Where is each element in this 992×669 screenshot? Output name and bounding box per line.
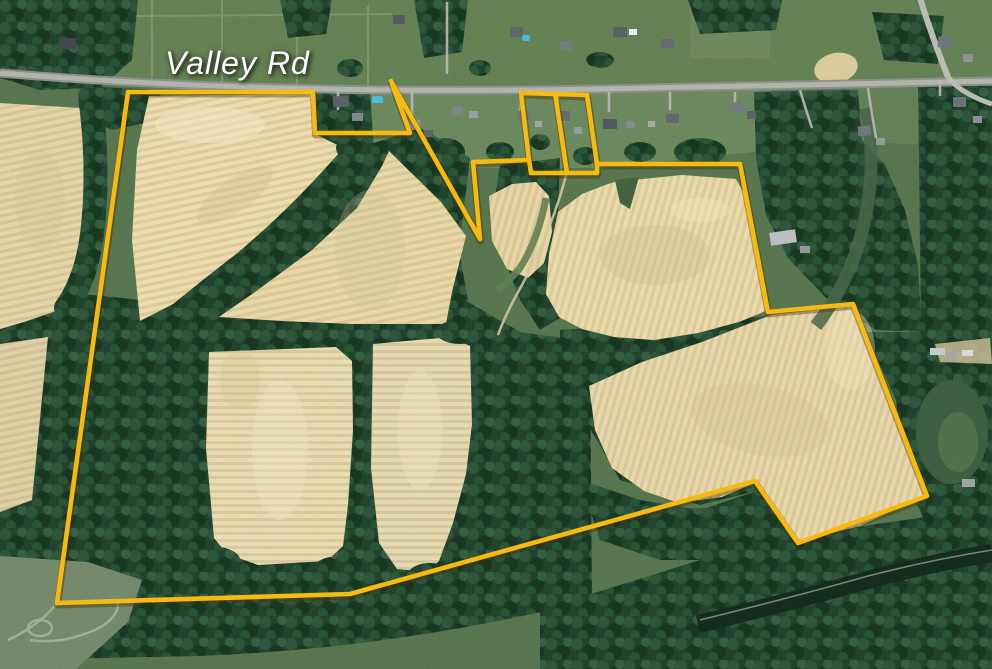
aerial-imagery: Valley Rd	[0, 0, 992, 669]
road-label: Valley Rd	[165, 45, 310, 81]
photo-grain	[0, 0, 992, 669]
satellite-map-view: Valley Rd	[0, 0, 992, 669]
